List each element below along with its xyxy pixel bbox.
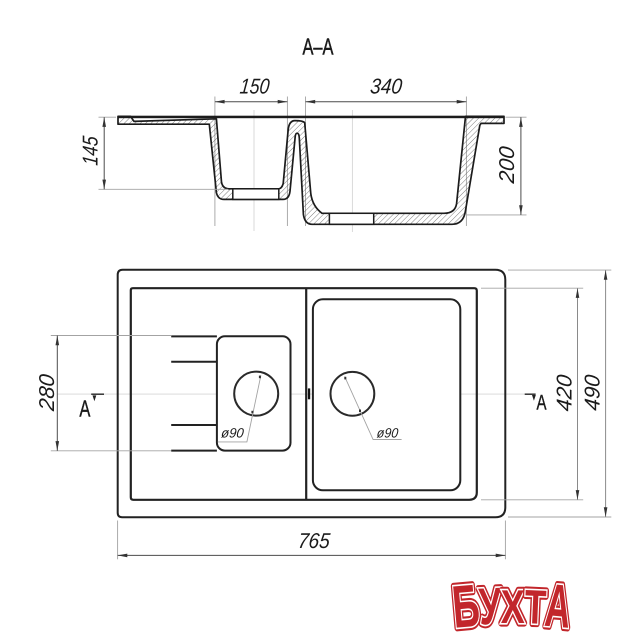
svg-text:ø90: ø90: [220, 426, 245, 441]
svg-text:A–A: A–A: [303, 34, 334, 60]
svg-text:А: А: [542, 571, 573, 640]
svg-text:Х: Х: [501, 580, 525, 633]
svg-text:420: 420: [551, 373, 576, 412]
svg-text:A: A: [537, 391, 547, 415]
svg-text:765: 765: [297, 528, 332, 553]
svg-text:490: 490: [580, 373, 605, 411]
svg-text:ø90: ø90: [376, 425, 399, 440]
svg-text:У: У: [478, 578, 503, 637]
svg-text:150: 150: [239, 74, 271, 99]
svg-text:340: 340: [369, 74, 403, 99]
svg-text:280: 280: [34, 373, 59, 413]
svg-text:A: A: [79, 396, 90, 422]
svg-text:200: 200: [494, 145, 519, 185]
svg-text:145: 145: [77, 134, 102, 166]
